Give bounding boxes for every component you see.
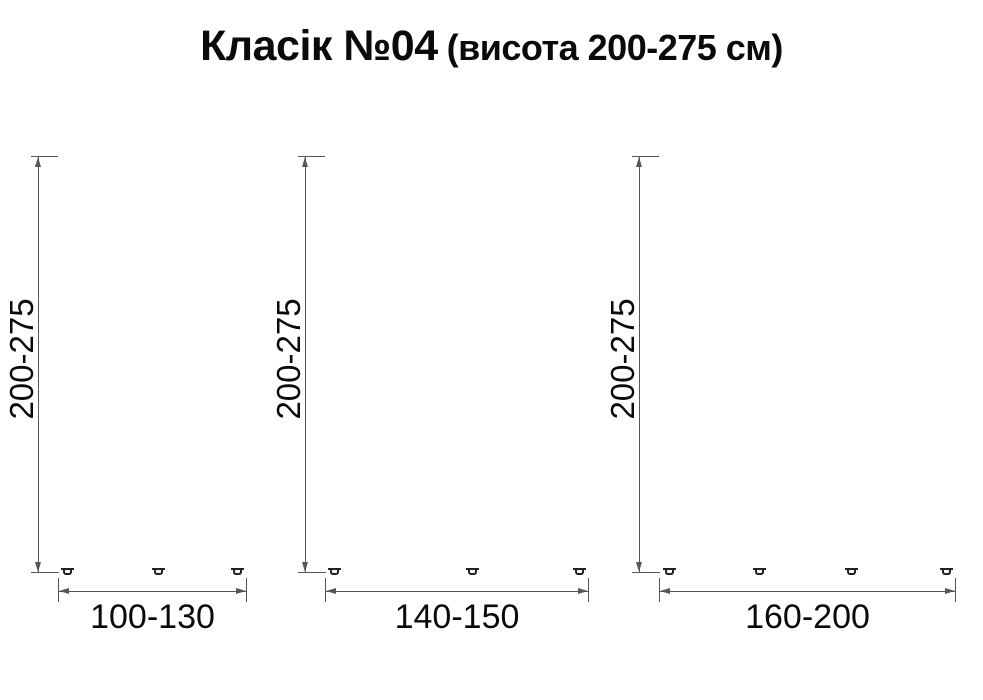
dimension-extension-bottom	[632, 572, 660, 573]
shelf	[482, 403, 584, 409]
dimension-extension-bottom	[31, 572, 59, 573]
page-title: Класік №04(висота 200-275 см)	[0, 22, 983, 71]
shelf	[482, 227, 584, 233]
height-dimension-label: 200-275	[604, 298, 642, 419]
door-divider	[330, 370, 478, 377]
shelf	[170, 403, 242, 409]
left-side-panel	[325, 157, 331, 567]
top-panel	[325, 156, 589, 161]
shelf	[482, 315, 584, 321]
arrow-up-icon	[636, 157, 642, 167]
dimension-extension-bottom	[298, 572, 326, 573]
shelf	[846, 227, 951, 233]
adjustable-foot	[61, 568, 74, 575]
arrow-right-icon	[236, 588, 246, 594]
arrow-down-icon	[35, 562, 41, 572]
furniture-dimension-diagram: Класік №04(висота 200-275 см) 200-275	[0, 0, 983, 700]
shelf	[170, 492, 242, 498]
right-side-panel	[241, 157, 247, 567]
shelf	[482, 492, 584, 498]
right-side-panel	[583, 157, 589, 567]
door-divider	[664, 372, 842, 379]
shelf	[170, 227, 242, 233]
wardrobe-diagram-large: 200-275 160-200	[600, 150, 970, 695]
arrow-left-icon	[59, 588, 69, 594]
shelf	[846, 315, 951, 321]
width-dimension-line	[659, 591, 956, 592]
adjustable-foot	[573, 568, 586, 575]
adjustable-foot	[663, 568, 676, 575]
wardrobe-outline	[659, 156, 956, 568]
wardrobe-diagram-small: 200-275 100-130	[8, 150, 260, 695]
adjustable-foot	[231, 568, 244, 575]
arrow-left-icon	[660, 588, 670, 594]
left-side-panel	[58, 157, 64, 567]
arrow-right-icon	[945, 588, 955, 594]
height-dimension-label: 200-275	[3, 298, 41, 419]
wardrobe-outline	[58, 156, 247, 568]
arrow-up-icon	[302, 157, 308, 167]
adjustable-foot	[466, 568, 479, 575]
base-panel	[659, 562, 956, 568]
product-name: Класік №04	[200, 22, 438, 70]
arrow-down-icon	[302, 562, 308, 572]
door-divider	[63, 380, 166, 387]
arrow-left-icon	[326, 588, 336, 594]
vertical-divider	[165, 160, 171, 564]
width-dimension-line	[58, 591, 247, 592]
adjustable-foot	[753, 568, 766, 575]
adjustable-foot	[940, 568, 953, 575]
arrow-up-icon	[35, 157, 41, 167]
width-dimension-label: 160-200	[659, 598, 956, 637]
width-dimension-label: 100-130	[58, 598, 247, 637]
shelf	[170, 315, 242, 321]
adjustable-foot	[152, 568, 165, 575]
wardrobe-outline	[325, 156, 589, 568]
arrow-right-icon	[578, 588, 588, 594]
shelf	[846, 403, 951, 409]
adjustable-foot	[845, 568, 858, 575]
top-panel	[58, 156, 247, 161]
left-side-panel	[659, 157, 665, 567]
adjustable-foot	[328, 568, 341, 575]
right-side-panel	[950, 157, 956, 567]
wardrobe-diagram-medium: 200-275 140-150	[270, 150, 610, 695]
height-dimension-label: 200-275	[270, 298, 308, 419]
base-panel	[325, 562, 589, 568]
height-range-subtitle: (висота 200-275 см)	[447, 27, 783, 68]
arrow-down-icon	[636, 562, 642, 572]
width-dimension-label: 140-150	[325, 598, 589, 637]
width-dimension-line	[325, 591, 589, 592]
vertical-divider	[841, 160, 847, 564]
shelf	[846, 492, 951, 498]
vertical-divider	[477, 160, 483, 564]
top-panel	[659, 156, 956, 161]
